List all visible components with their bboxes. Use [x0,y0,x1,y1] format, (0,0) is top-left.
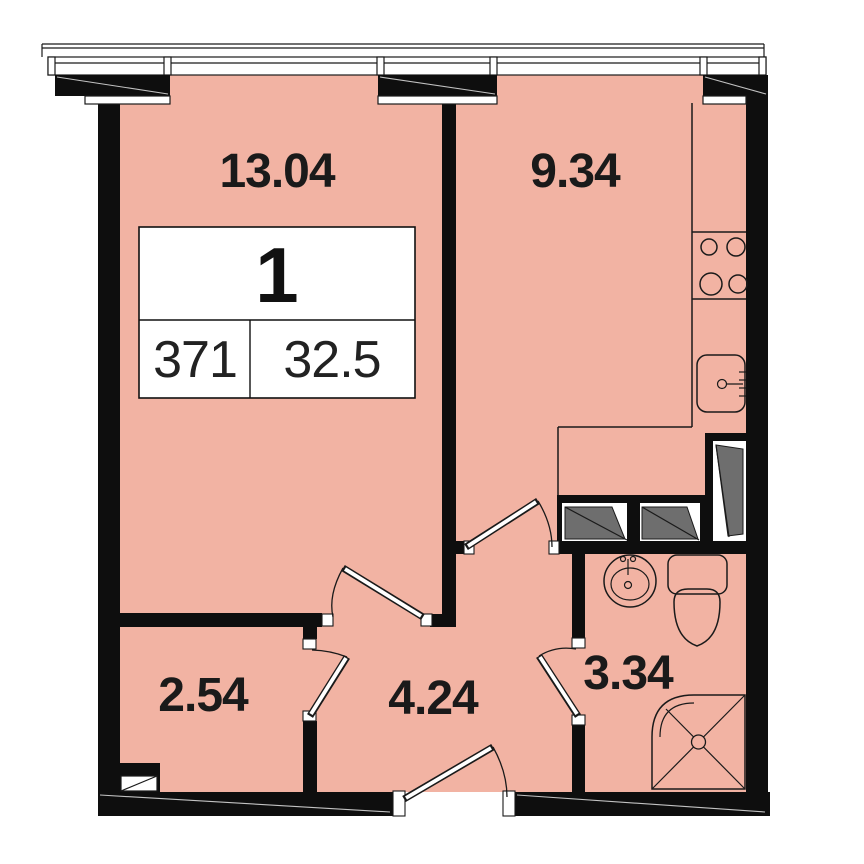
wall-right-outer [746,75,768,816]
door-jamb [572,715,585,725]
window-mullion [377,57,384,75]
door-jamb [503,791,515,816]
wall-left-outer [98,100,120,816]
living-room-area-label: 13.04 [219,145,335,198]
wall-living-closet [120,613,322,627]
electrical-panel-icon [121,776,157,791]
window-mullion [759,57,766,75]
card-unit-number: 371 [153,331,237,389]
wall-hall-bath-top [572,554,585,638]
window-glass-band [48,57,766,75]
wall-wardrobe-top [557,495,713,503]
wall-closet-hall-bottom [303,721,317,792]
door-jamb [303,639,316,649]
window-sill [703,96,746,104]
card-room-count: 1 [255,231,298,319]
wardrobe-icon [713,441,746,541]
wall-wardrobe-left [557,503,562,541]
door-jamb [549,541,559,554]
window-sill [378,96,497,104]
window-icon [48,57,766,75]
shower-drain [692,735,706,749]
floor-plan-drawing: 13.04 9.34 2.54 4.24 3.34 1 371 32.5 [0,0,864,864]
door-jamb [322,614,333,626]
window-mullion [164,57,171,75]
door-jamb [393,791,405,816]
card-total-area: 32.5 [283,331,380,389]
wardrobe-icon [640,503,700,541]
wall-living-stub [430,614,456,627]
wall-kitchen-hall-left [456,541,464,554]
wardrobe-icon [562,503,627,541]
window-sill [85,96,170,104]
window-mullion [700,57,707,75]
balcony-edge [42,44,764,57]
bathroom-area-label: 3.34 [583,647,674,700]
window-mullion [48,57,55,75]
closet-area-label: 2.54 [158,669,249,722]
hall-area-label: 4.24 [388,672,479,725]
wall-hall-bath-bottom [572,725,585,792]
floor-plan-page: 13.04 9.34 2.54 4.24 3.34 1 371 32.5 [0,0,864,864]
wall-closet-hall-top [303,627,317,639]
window-mullion [490,57,497,75]
wall-tall-wardrobe-left [705,433,713,541]
wall-tall-wardrobe-top [705,433,746,441]
apartment-card: 1 371 32.5 [139,227,415,398]
wall-kitchen-hall-right [559,541,746,554]
wall-living-kitchen [442,102,456,614]
wall-wardrobe-divider [627,503,640,541]
kitchen-area-label: 9.34 [530,145,621,198]
